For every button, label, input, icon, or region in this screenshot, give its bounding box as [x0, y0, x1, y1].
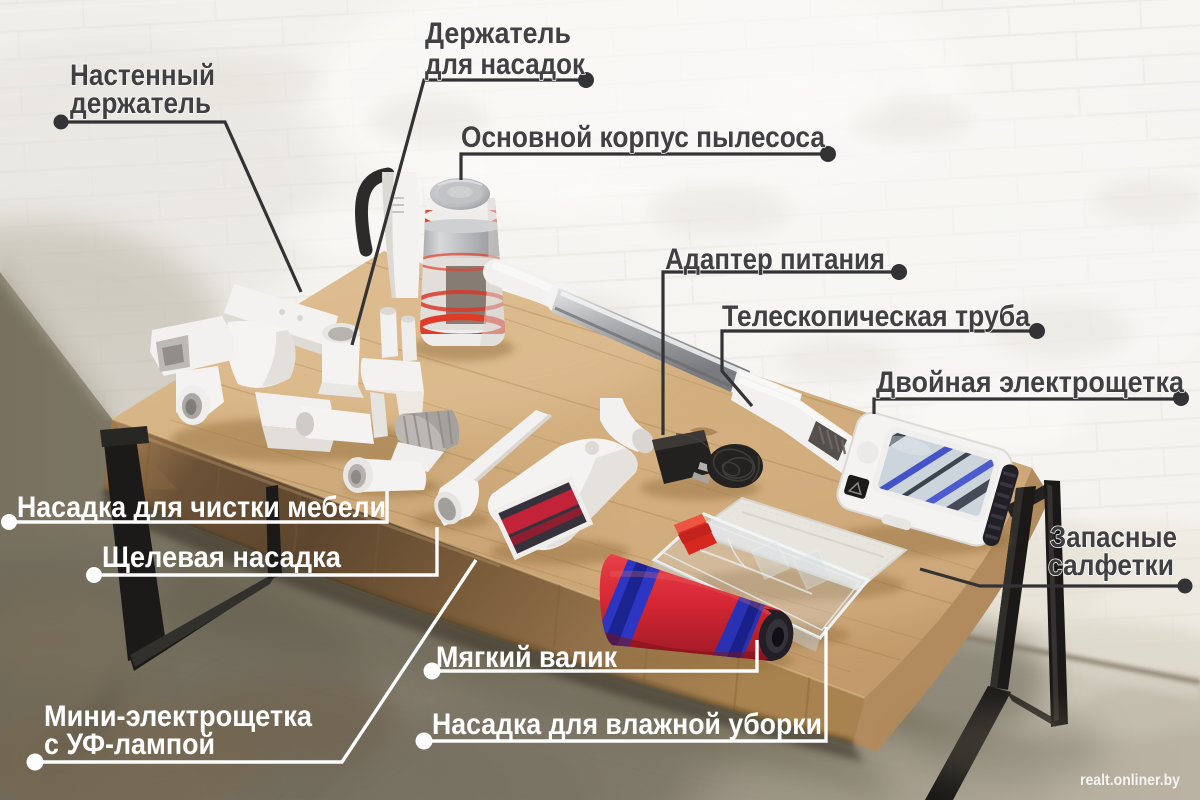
svg-text:Двойная электрощетка: Двойная электрощетка: [876, 366, 1184, 399]
svg-text:Насадка для влажной уборки: Насадка для влажной уборки: [432, 708, 822, 741]
svg-text:Щелевая насадка: Щелевая насадка: [102, 541, 341, 574]
svg-text:realt.onliner.by: realt.onliner.by: [1080, 772, 1180, 789]
svg-text:Мягкий валик: Мягкий валик: [436, 641, 618, 674]
svg-text:Насадка для чистки мебели: Насадка для чистки мебели: [17, 491, 386, 524]
svg-text:для насадок: для насадок: [425, 48, 586, 81]
svg-text:держатель: держатель: [70, 87, 211, 120]
svg-text:с УФ-лампой: с УФ-лампой: [44, 728, 215, 761]
svg-text:салфетки: салфетки: [1048, 549, 1174, 582]
svg-text:Адаптер питания: Адаптер питания: [665, 243, 885, 276]
svg-text:Телескопическая труба: Телескопическая труба: [722, 300, 1030, 333]
svg-text:Основной корпус пылесоса: Основной корпус пылесоса: [461, 121, 825, 154]
svg-text:Держатель: Держатель: [425, 17, 571, 50]
